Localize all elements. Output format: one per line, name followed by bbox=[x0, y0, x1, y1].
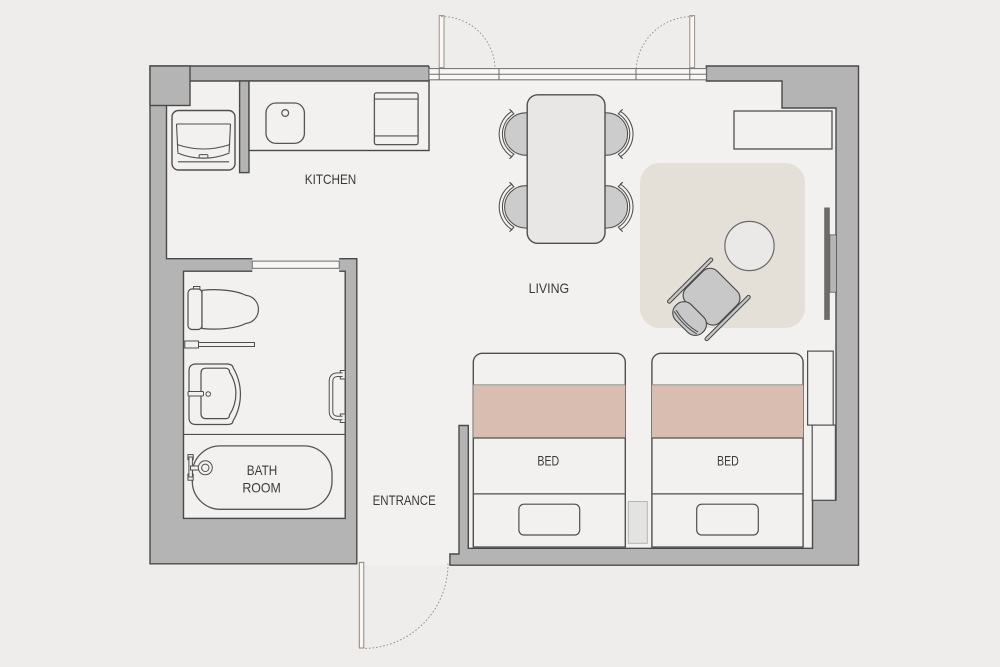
svg-text:BATH: BATH bbox=[247, 463, 277, 478]
svg-text:LIVING: LIVING bbox=[529, 281, 570, 296]
svg-text:KITCHEN: KITCHEN bbox=[305, 172, 357, 187]
svg-text:BED: BED bbox=[717, 454, 739, 469]
svg-text:ENTRANCE: ENTRANCE bbox=[373, 493, 436, 508]
svg-text:BED: BED bbox=[537, 454, 559, 469]
svg-text:ROOM: ROOM bbox=[242, 480, 281, 495]
